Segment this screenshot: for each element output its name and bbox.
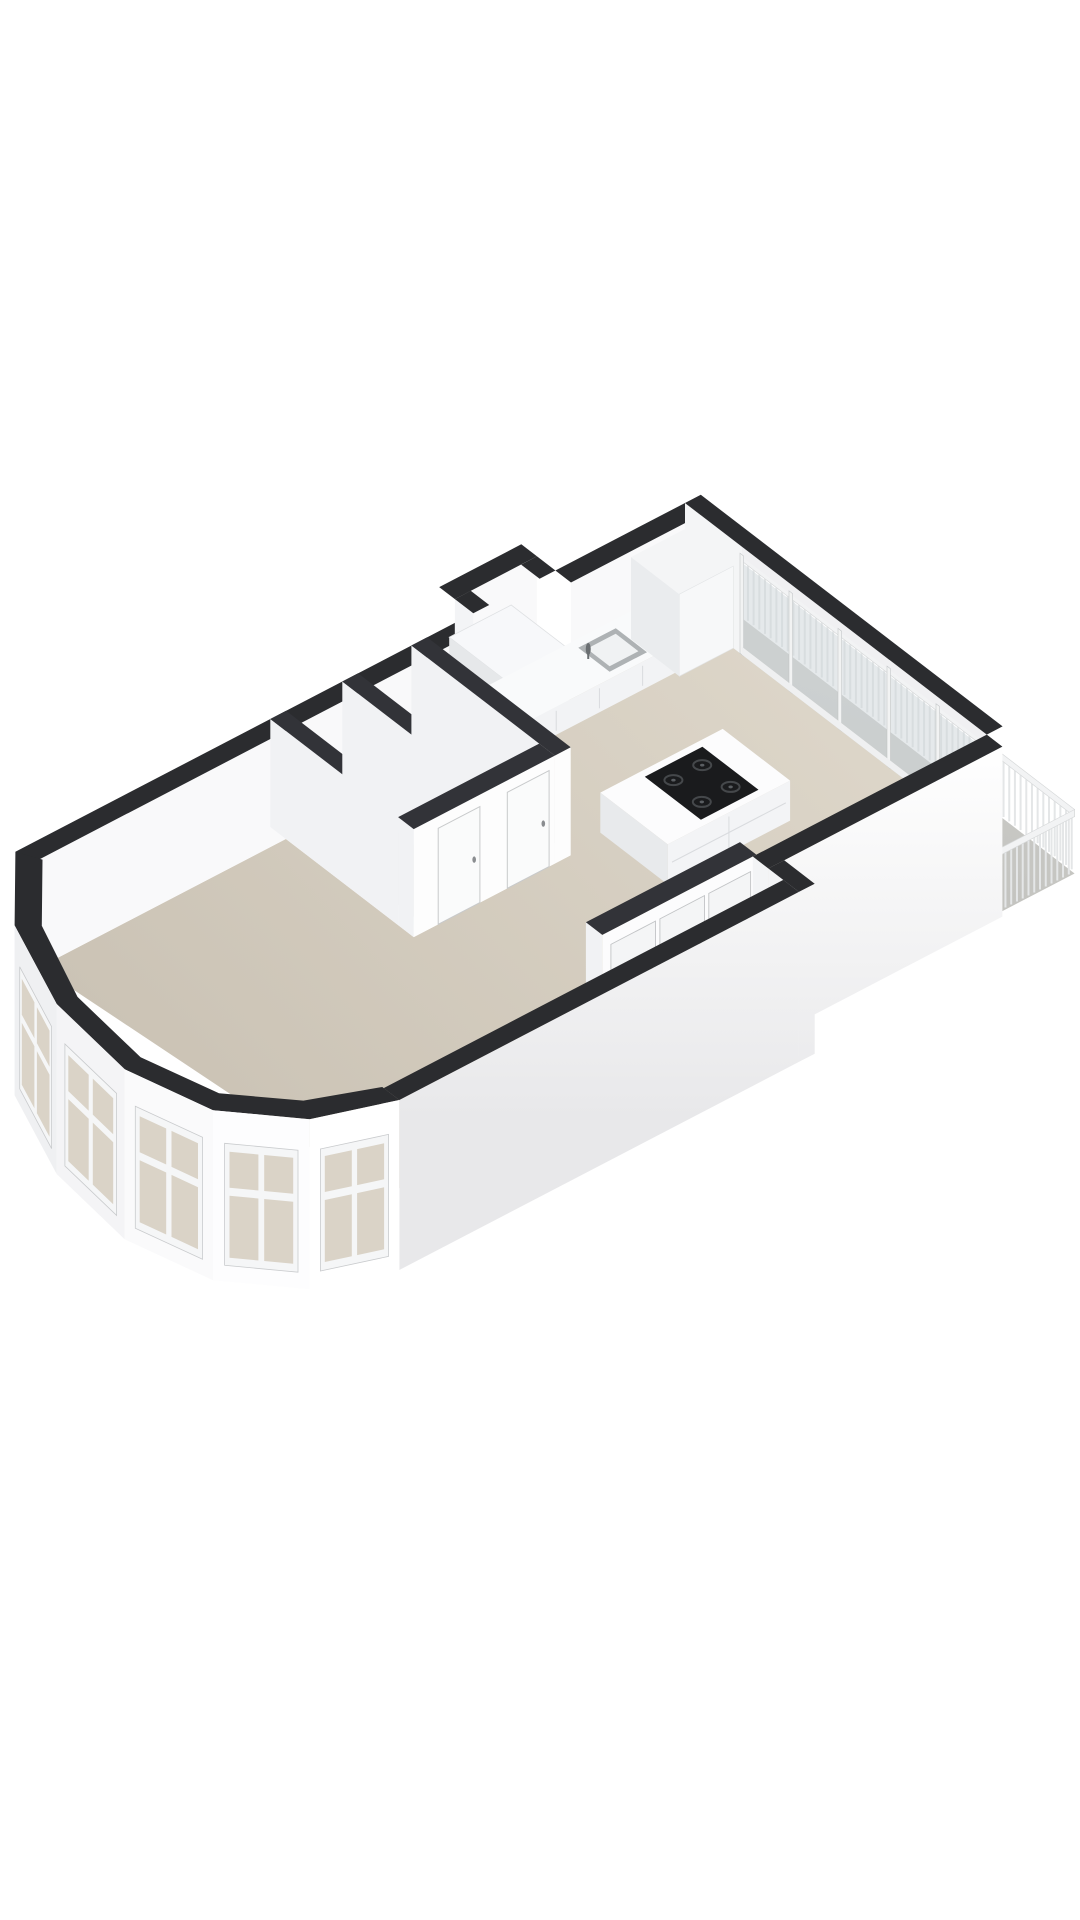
door-handle — [542, 820, 546, 826]
glass-door-frame — [838, 628, 842, 731]
door-handle — [472, 856, 476, 862]
bay-window-pane — [230, 1152, 259, 1191]
bay-window-pane — [230, 1196, 259, 1261]
wall-w2-face-sw — [398, 817, 414, 937]
cooktop-burner-center — [700, 764, 704, 767]
bay-window-pane — [325, 1194, 352, 1262]
bay-window-pane — [325, 1150, 352, 1192]
floorplan-3d-render — [0, 0, 1080, 1920]
bay-window-pane — [140, 1160, 167, 1234]
glass-door-frame — [740, 553, 744, 656]
cooktop-burner-center — [728, 786, 732, 789]
glass-door-frame — [887, 666, 891, 769]
bay-window-pane — [264, 1155, 293, 1194]
glass-door-frame — [789, 591, 793, 694]
bay-window-pane — [357, 1187, 384, 1255]
cooktop-burner-center — [671, 779, 675, 782]
cooktop-burner-center — [700, 801, 704, 804]
wall-w4-face-se — [555, 747, 571, 863]
bay-window-pane — [264, 1199, 293, 1264]
floorplan-page — [0, 0, 1080, 1920]
bay-window-pane — [172, 1175, 199, 1249]
bay-window-pane — [357, 1143, 384, 1185]
wall-se-connector-cap — [799, 884, 815, 1062]
